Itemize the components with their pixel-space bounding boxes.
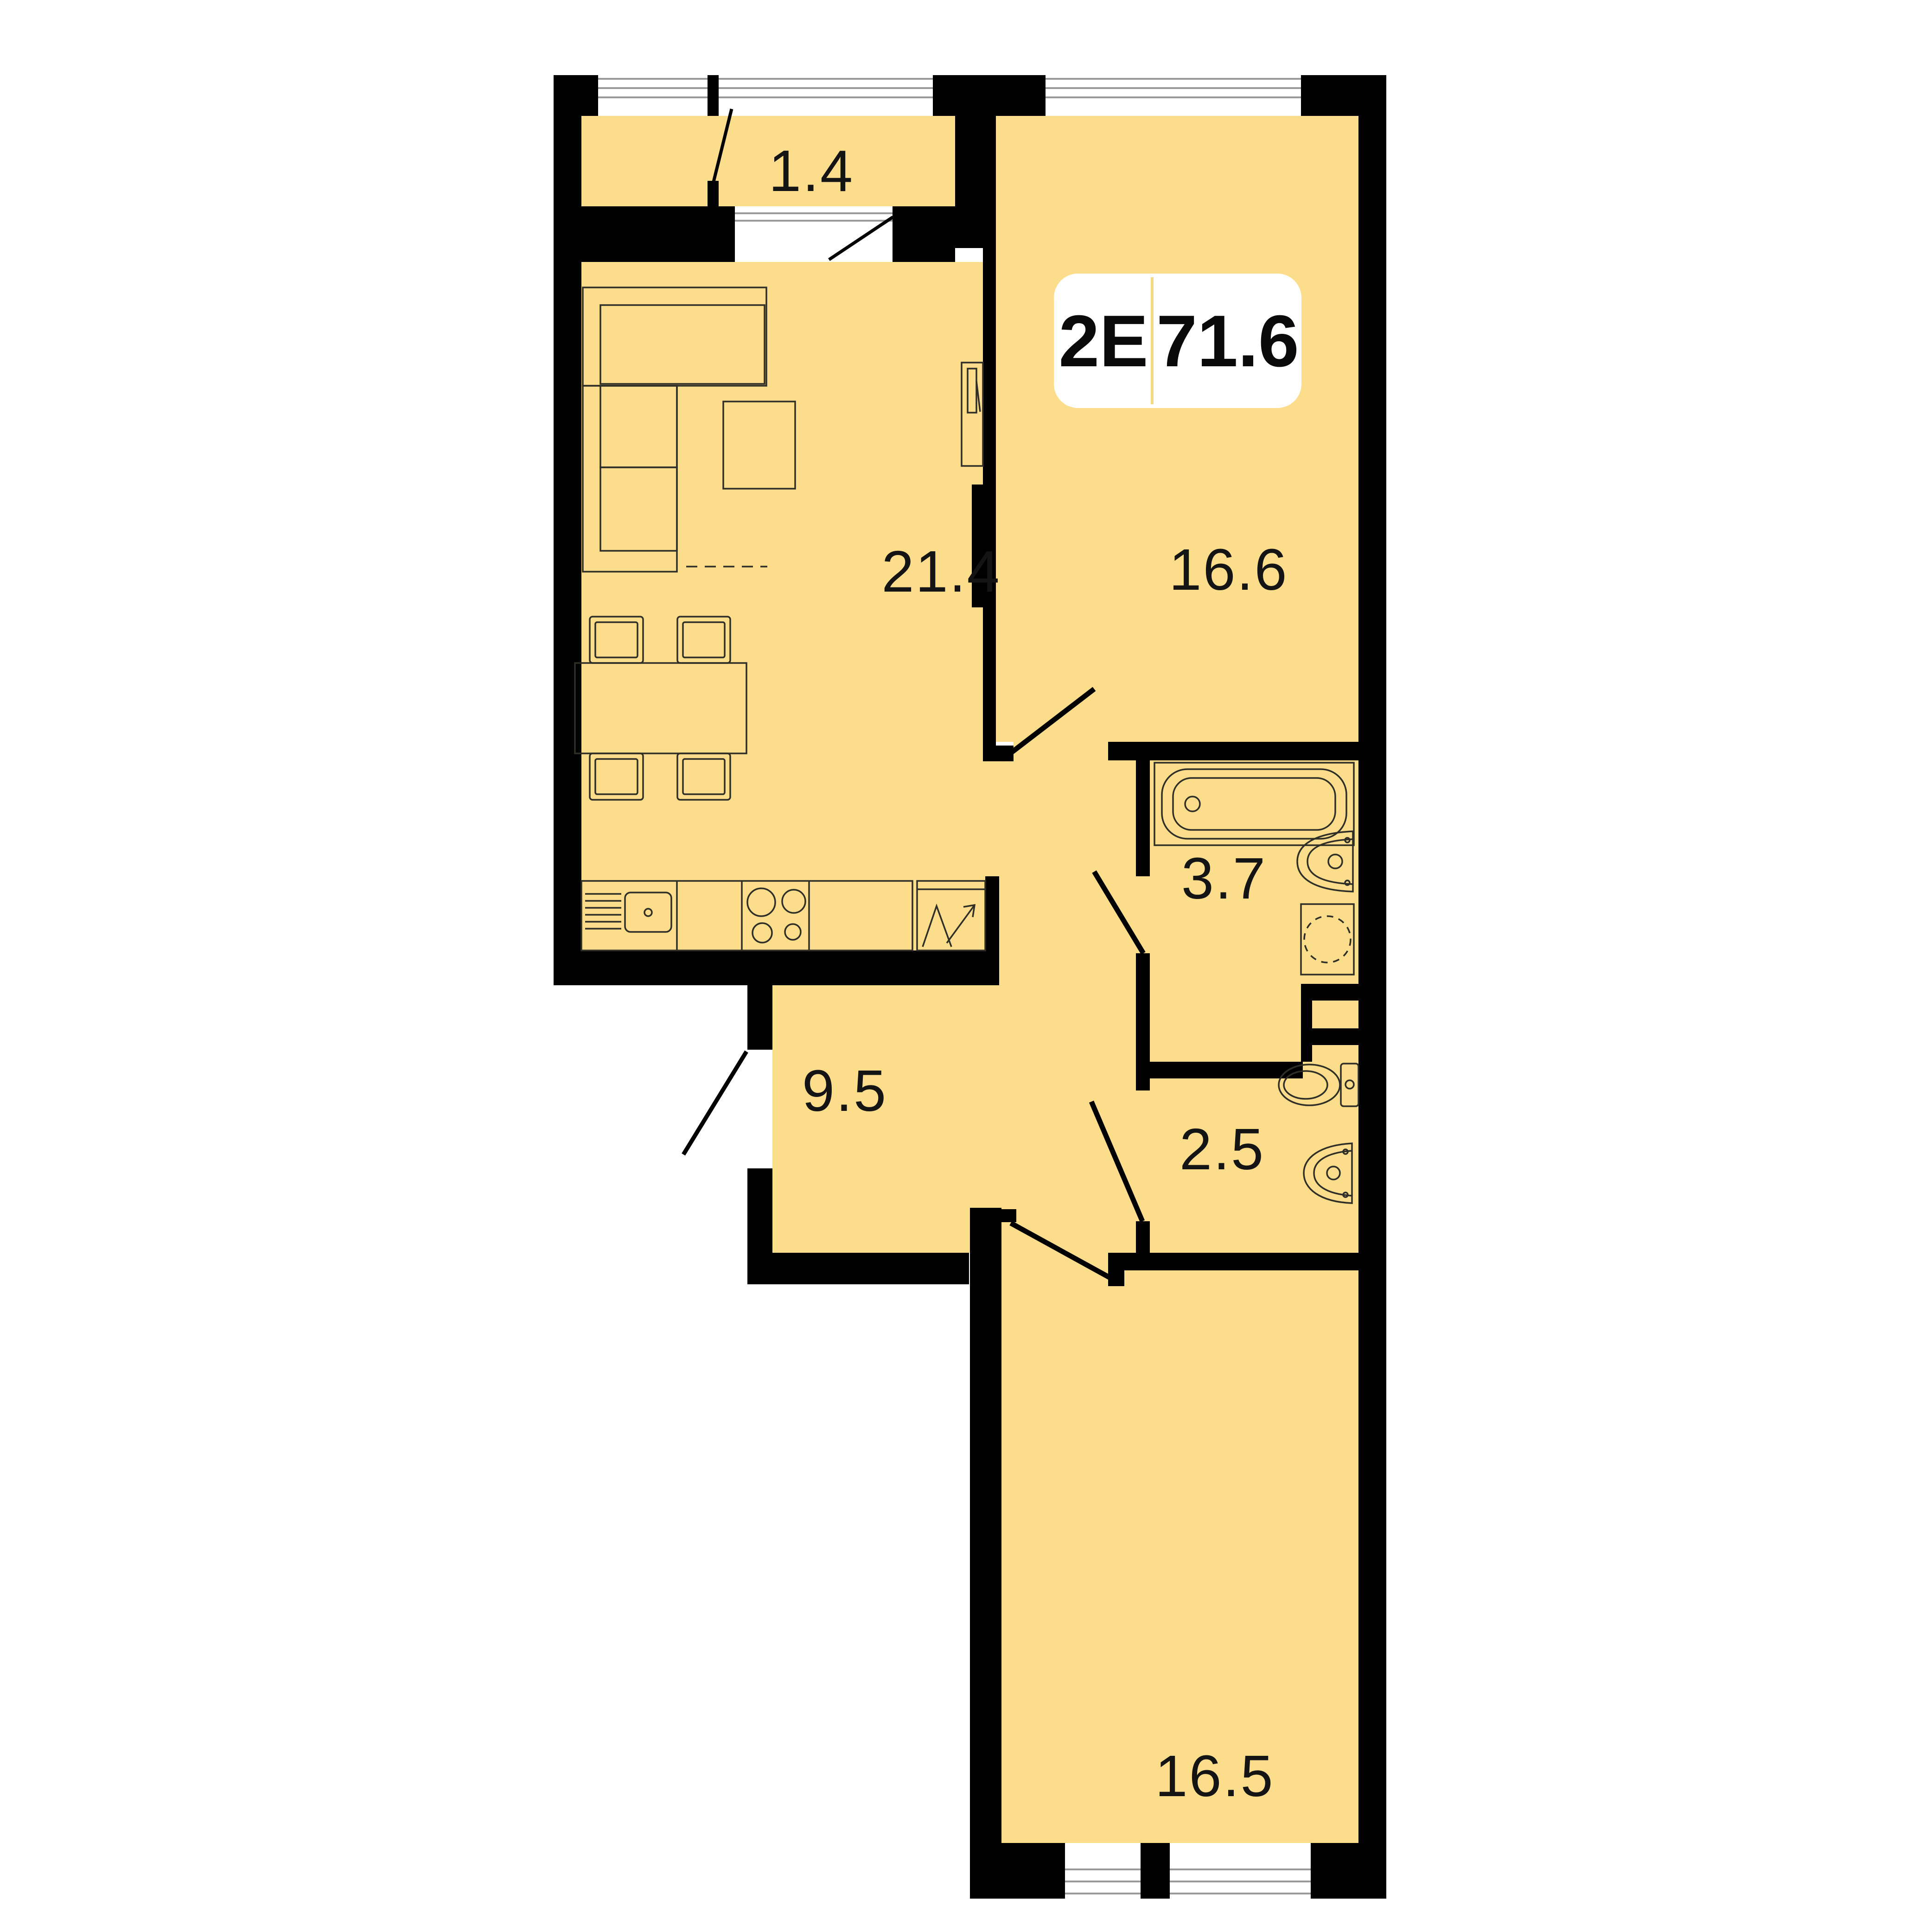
wall-bedroom2-left xyxy=(970,1208,1001,1843)
window-bedroom xyxy=(1046,75,1301,116)
wall-kitchen-bottom xyxy=(554,950,999,985)
wall-bottom-mullion xyxy=(1141,1843,1170,1899)
doorway-wc xyxy=(1136,1090,1150,1221)
wall-bedroom2-stub xyxy=(1001,1209,1016,1222)
wall-counter-end xyxy=(985,876,999,950)
wall-wc-bottom xyxy=(1108,1253,1358,1270)
floor-plan-canvas: 1.4 21.4 16.6 3.7 9.5 2.5 16.5 2E 71.6 xyxy=(0,0,1932,1932)
room-label-bathroom: 3.7 xyxy=(1181,846,1267,911)
wall-top-middle xyxy=(933,75,1046,116)
wall-entrance-pier-top xyxy=(747,985,772,1050)
wall-top-corner-right xyxy=(1301,75,1386,116)
wall-bedroom-bottom xyxy=(1108,742,1358,760)
doorway-bedroom xyxy=(1014,742,1108,760)
room-label-balcony: 1.4 xyxy=(769,138,854,204)
wall-living-top-right xyxy=(893,206,955,262)
window-living-balcony xyxy=(735,209,893,262)
apartment-badge: 2E 71.6 xyxy=(1054,274,1301,408)
wall-living-top-left xyxy=(554,206,735,262)
room-bathroom xyxy=(1150,760,1358,1062)
window-bedroom2-1 xyxy=(1065,1843,1141,1899)
wall-bathroom-wc-divider xyxy=(1136,1062,1303,1078)
wall-shaft-top xyxy=(1301,984,1358,1001)
wall-shaft-bottom xyxy=(1312,1028,1358,1045)
wall-bottom-corner-left xyxy=(970,1843,1065,1899)
badge-type-label: 2E xyxy=(1058,300,1148,382)
wall-entrance-pier-bottom xyxy=(747,1168,772,1253)
wall-wc-left-lower xyxy=(1136,1221,1150,1253)
room-bedroom xyxy=(996,116,1358,742)
wall-balcony-door-block xyxy=(708,181,719,206)
wall-bathroom-left-lower xyxy=(1136,953,1150,1062)
window-balcony-1 xyxy=(598,75,708,116)
wall-divider-thin-upper xyxy=(983,248,996,485)
room-hallway xyxy=(772,760,1136,1253)
wall-divider-thin-lower xyxy=(983,607,996,746)
room-label-living-kitchen: 21.4 xyxy=(881,539,1001,604)
wall-hallway-bottom xyxy=(747,1253,969,1284)
wall-balcony-mullion xyxy=(708,75,719,116)
room-label-bedroom-2: 16.5 xyxy=(1155,1743,1274,1809)
wall-wc-left-upper xyxy=(1136,1078,1150,1090)
wall-bottom-corner-right xyxy=(1311,1843,1386,1899)
room-label-hallway: 9.5 xyxy=(802,1058,887,1123)
wall-bathroom-left-upper xyxy=(1136,760,1150,876)
wall-right-outer xyxy=(1358,116,1386,1899)
room-label-bedroom: 16.6 xyxy=(1169,537,1288,602)
wall-divider-thick xyxy=(955,116,996,248)
window-balcony-2 xyxy=(719,75,933,116)
wall-top-corner-left xyxy=(554,75,598,116)
room-label-wc: 2.5 xyxy=(1180,1116,1265,1182)
window-bedroom2-2 xyxy=(1170,1843,1311,1899)
badge-area-label: 71.6 xyxy=(1156,300,1299,382)
